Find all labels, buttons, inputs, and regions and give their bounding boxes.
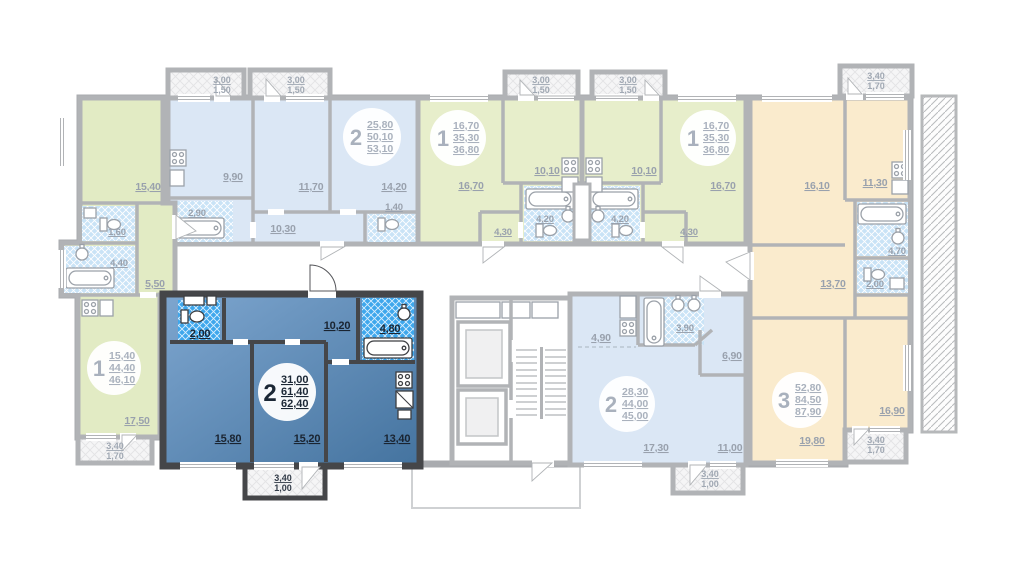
duct	[890, 278, 904, 289]
living-area: 16,70	[703, 120, 729, 132]
toilet-tank-icon	[181, 310, 188, 323]
rooms-count: 1	[437, 126, 449, 151]
label-kitchen-area: 13,40	[384, 433, 411, 445]
svg-text:3,401,70: 3,401,70	[106, 441, 124, 461]
label-kitchen-area: 9,90	[223, 171, 243, 183]
floorplan-page: 9,90 11,70 14,20 2,90 10,30 1,40 16,70 1…	[0, 0, 1024, 576]
type-badge-2room-bottom-middle: 2 28,30 44,00 45,00	[599, 376, 655, 432]
stove-icon	[170, 150, 186, 166]
balcony-area: 3,40	[274, 473, 292, 483]
total-area-with-balcony: 36,80	[453, 144, 479, 156]
label-wc-area: 2,00	[866, 279, 884, 290]
total-area: 44,40	[109, 362, 135, 374]
balcony-area: 3,40	[867, 71, 885, 81]
toilet-icon	[536, 224, 557, 237]
living-area: 25,80	[367, 119, 393, 131]
balcony-area-counted: 1,70	[867, 81, 885, 91]
rooms-count: 1	[93, 356, 105, 381]
total-area: 35,30	[453, 132, 479, 144]
label-room-area: 11,70	[299, 181, 324, 193]
balcony-area: 3,40	[106, 441, 124, 451]
type-badge-2room-selected: 2 31,00 61,40 62,40	[258, 363, 316, 421]
label-kitchen-area: 4,90	[591, 332, 611, 344]
stove-icon	[562, 158, 578, 174]
stove-icon	[396, 372, 412, 388]
total-area: 50,10	[367, 131, 393, 143]
stair-elevator-core	[452, 298, 570, 481]
balcony-area: 3,00	[213, 75, 231, 85]
duct	[207, 296, 216, 305]
balcony	[168, 70, 244, 98]
total-area: 61,40	[281, 386, 309, 398]
svg-text:3,001,50: 3,001,50	[532, 75, 550, 95]
balcony-area-counted: 1,00	[274, 483, 292, 493]
kitchen-sink-icon	[100, 300, 113, 316]
label-room-area: 16,10	[804, 180, 830, 192]
apartment-2room-bottom-middle[interactable]	[570, 294, 746, 465]
type-badge-1room-left-of-center: 1 16,70 35,30 36,80	[430, 110, 486, 166]
balcony-area-counted: 1,50	[287, 85, 305, 95]
svg-text:3,401,00: 3,401,00	[274, 473, 292, 493]
stove-icon	[620, 320, 636, 336]
label-hall-area: 4,30	[494, 227, 512, 238]
label-wc-area: 2,00	[190, 328, 211, 340]
balcony-area: 3,40	[867, 435, 885, 445]
label-bath-area: 2,90	[188, 208, 206, 219]
label-room-area: 15,20	[294, 433, 321, 445]
label-bath-area: 3,90	[676, 323, 694, 334]
toilet-icon	[612, 224, 633, 237]
label-hall-area: 4,30	[680, 227, 698, 238]
label-bath-area: 4,20	[611, 214, 629, 225]
total-area-with-balcony: 62,40	[281, 398, 309, 410]
living-area: 28,30	[622, 386, 648, 398]
toilet-icon	[190, 311, 204, 322]
shelf	[184, 296, 204, 305]
entrance-outline	[412, 466, 580, 508]
label-room-area: 19,80	[799, 435, 825, 447]
type-badge-1room-right-of-center: 1 16,70 35,30 36,80	[680, 110, 736, 166]
total-area: 35,30	[703, 132, 729, 144]
label-bath-area: 4,80	[380, 323, 401, 335]
living-area: 15,40	[109, 350, 135, 362]
elevator-car	[466, 330, 502, 378]
kitchen-sink-icon	[170, 170, 184, 186]
living-area: 16,70	[453, 120, 479, 132]
label-bath-area: 4,20	[536, 214, 554, 225]
bathtub-icon	[66, 268, 114, 288]
storage-box	[502, 302, 530, 318]
storage-box	[456, 302, 500, 318]
svg-text:3,001,50: 3,001,50	[287, 75, 305, 95]
rooms-count: 2	[605, 392, 617, 417]
floorplan-drawing: 9,90 11,70 14,20 2,90 10,30 1,40 16,70 1…	[0, 0, 1024, 576]
total-area-with-balcony: 45,00	[622, 410, 648, 422]
balcony-area: 3,40	[701, 469, 719, 479]
elevator-car	[466, 398, 498, 436]
bathtub-icon	[364, 338, 412, 358]
shaft	[574, 184, 590, 240]
label-hall-area: 6,90	[722, 350, 742, 362]
label-wc-area: 1,60	[108, 227, 126, 238]
balcony-area-counted: 1,50	[619, 85, 637, 95]
adjacent-section-hatch	[922, 96, 956, 432]
label-hall-area: 13,70	[820, 278, 846, 290]
svg-text:3,401,70: 3,401,70	[867, 71, 885, 91]
rooms-count: 3	[778, 388, 790, 413]
label-kitchen-area: 10,10	[631, 165, 657, 177]
balcony-area: 3,00	[619, 75, 637, 85]
bathtub-icon	[644, 298, 664, 346]
oven-icon	[892, 180, 908, 194]
rooms-count: 2	[350, 125, 362, 150]
balcony-area: 3,00	[287, 75, 305, 85]
balcony-area-counted: 1,00	[701, 479, 719, 489]
kitchen-sink-icon	[398, 410, 411, 419]
svg-text:3,401,00: 3,401,00	[701, 469, 719, 489]
type-badge-2room-top-left: 2 25,80 50,10 53,10	[343, 108, 401, 166]
label-hall-area: 10,30	[270, 223, 296, 235]
total-area-with-balcony: 36,80	[703, 144, 729, 156]
label-kitchen-area: 10,10	[534, 165, 560, 177]
balcony-area: 3,00	[532, 75, 550, 85]
total-area: 44,00	[622, 398, 648, 410]
label-room-area: 16,70	[710, 180, 736, 192]
exit-door-swing	[532, 463, 552, 481]
label-wc-area: 1,40	[385, 202, 403, 213]
label-hall-area: 5,50	[145, 278, 165, 290]
stove-icon	[82, 300, 98, 316]
balcony-area-counted: 1,50	[532, 85, 550, 95]
stove-icon	[586, 158, 602, 174]
bathtub-icon	[858, 204, 906, 224]
svg-text:3,001,50: 3,001,50	[619, 75, 637, 95]
balcony-area-counted: 1,70	[106, 451, 124, 461]
sink-icon	[84, 208, 96, 218]
toilet-icon	[378, 218, 399, 231]
total-area-with-balcony: 46,10	[109, 374, 135, 386]
svg-text:3,401,70: 3,401,70	[867, 435, 885, 455]
label-room-area: 15,40	[135, 181, 161, 193]
label-bath-area: 4,70	[888, 246, 906, 257]
label-room-area: 17,30	[643, 442, 669, 454]
type-badge-1room-left: 1 15,40 44,40 46,10	[87, 341, 141, 395]
total-area-with-balcony: 53,10	[367, 143, 393, 155]
total-area: 84,50	[795, 394, 821, 406]
balcony-area-counted: 1,50	[213, 85, 231, 95]
storage-box	[532, 302, 558, 318]
label-kitchen-area: 11,30	[863, 177, 888, 189]
balcony-area-counted: 1,70	[867, 445, 885, 455]
label-room-area: 16,70	[458, 180, 484, 192]
label-room-area: 16,90	[879, 405, 905, 417]
label-room-area: 17,50	[124, 415, 150, 427]
living-area: 31,00	[281, 374, 309, 386]
svg-text:3,001,50: 3,001,50	[213, 75, 231, 95]
total-area-with-balcony: 87,90	[795, 406, 821, 418]
label-room-area: 11,00	[718, 442, 743, 454]
kitchen-sink-icon	[620, 296, 636, 318]
rooms-count: 2	[263, 380, 276, 407]
living-area: 52,80	[795, 382, 821, 394]
label-room-area: 14,20	[381, 181, 407, 193]
label-hall-area: 10,20	[324, 320, 351, 332]
label-bath-area: 4,40	[110, 258, 128, 269]
rooms-count: 1	[687, 126, 699, 151]
type-badge-3room-right: 3 52,80 84,50 87,90	[772, 372, 828, 428]
label-room-area: 15,80	[215, 433, 242, 445]
